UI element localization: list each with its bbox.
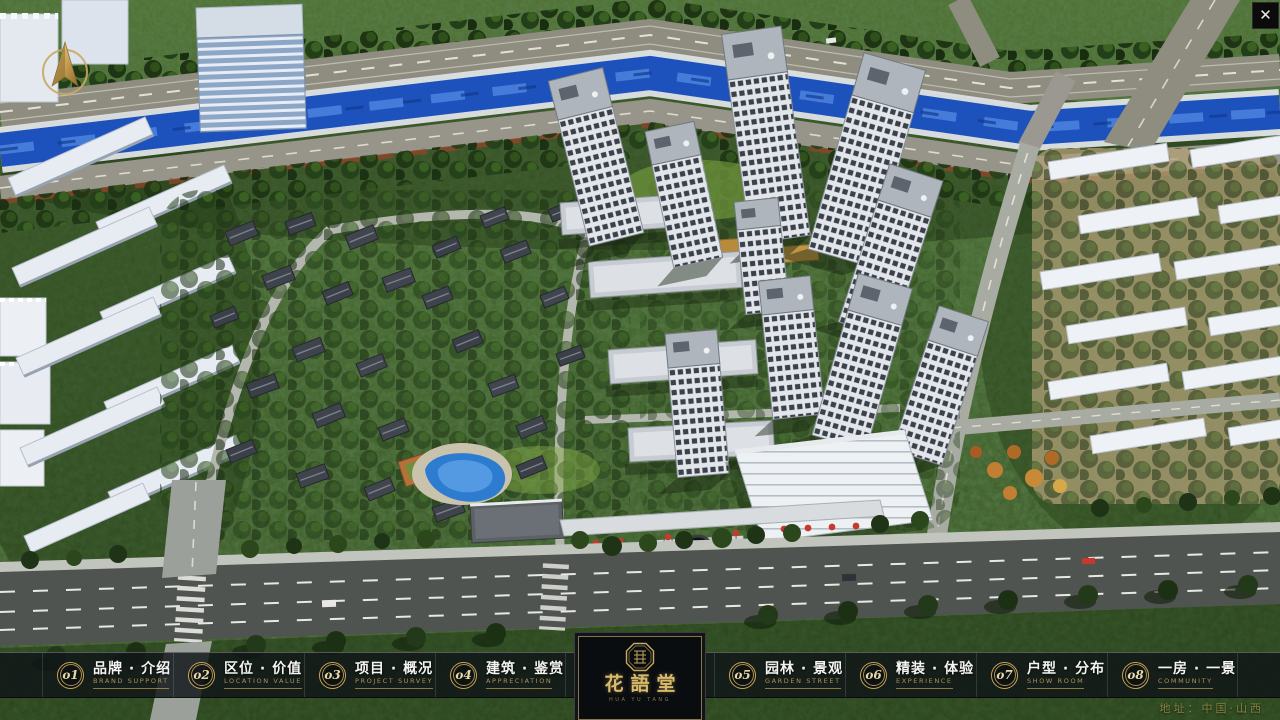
menu-spacer-right	[1238, 653, 1280, 697]
nav-item-architecture[interactable]: o4 建筑 · 鉴赏 APPRECIATION	[435, 653, 566, 697]
nav-item-sublabel: SHOW ROOM	[1027, 677, 1084, 689]
compass-north-icon	[32, 28, 98, 112]
item-number-badge: o1	[57, 662, 84, 689]
item-number-badge: o3	[319, 662, 346, 689]
nav-item-sublabel: PROJECT SURVEY	[355, 677, 433, 689]
nav-item-unit-distribution[interactable]: o7 户型 · 分布 SHOW ROOM	[976, 653, 1107, 697]
nav-item-sublabel: APPRECIATION	[486, 677, 552, 689]
item-number-badge: o8	[1122, 662, 1149, 689]
item-number: o1	[62, 668, 78, 682]
nav-item-label: 项目 · 概况	[355, 662, 433, 677]
seal-emblem-icon	[625, 642, 655, 672]
nav-item-project-survey[interactable]: o3 项目 · 概况 PROJECT SURVEY	[304, 653, 435, 697]
item-number: o4	[455, 668, 471, 682]
project-logo-name: 花語堂	[597, 673, 682, 695]
nav-item-sublabel: EXPERIENCE	[896, 677, 953, 689]
project-logo-button[interactable]: 花語堂 HUA YU TANG	[578, 636, 702, 720]
nav-item-brand-intro[interactable]: o1 品牌 · 介绍 BRAND SUPPORT	[42, 653, 173, 697]
item-number: o5	[734, 668, 750, 682]
nav-item-label: 品牌 · 介绍	[93, 662, 171, 677]
nav-item-location-value[interactable]: o2 区位 · 价值 LOCATION VALUE	[173, 653, 304, 697]
nav-item-label: 精装 · 体验	[896, 662, 974, 677]
nav-item-label: 一房 · 一景	[1158, 662, 1236, 677]
nav-item-sublabel: LOCATION VALUE	[224, 677, 302, 689]
masterplan-render	[0, 0, 1280, 720]
sales-presentation-screen: ✕ o1 品牌 · 介绍 BRAND SUPPORT o2 区位 · 价值 LO…	[0, 0, 1280, 720]
nav-item-room-view[interactable]: o8 一房 · 一景 COMMUNITY	[1107, 653, 1238, 697]
nav-item-label: 户型 · 分布	[1027, 662, 1105, 677]
project-address-label: 地址：中国·山西	[1160, 700, 1265, 716]
item-number-badge: o4	[450, 662, 477, 689]
nav-item-sublabel: BRAND SUPPORT	[93, 677, 169, 689]
item-number-badge: o2	[188, 662, 215, 689]
nav-item-label: 园林 · 景观	[765, 662, 843, 677]
nav-item-label: 区位 · 价值	[224, 662, 302, 677]
nav-item-label: 建筑 · 鉴赏	[486, 662, 564, 677]
item-number-badge: o7	[991, 662, 1018, 689]
close-icon: ✕	[1259, 8, 1272, 23]
item-number-badge: o6	[860, 662, 887, 689]
item-number: o3	[324, 668, 340, 682]
item-number: o2	[193, 668, 209, 682]
project-logo-caption: HUA YU TANG	[609, 697, 671, 703]
nav-item-interior-experience[interactable]: o6 精装 · 体验 EXPERIENCE	[845, 653, 976, 697]
item-number: o6	[865, 668, 881, 682]
item-number-badge: o5	[729, 662, 756, 689]
close-button[interactable]: ✕	[1252, 2, 1279, 29]
nav-item-garden-landscape[interactable]: o5 园林 · 景观 GARDEN STREET	[714, 653, 845, 697]
nav-item-sublabel: GARDEN STREET	[765, 677, 841, 689]
nav-item-sublabel: COMMUNITY	[1158, 677, 1213, 689]
item-number: o7	[996, 668, 1012, 682]
menu-spacer-left	[0, 653, 42, 697]
item-number: o8	[1127, 668, 1143, 682]
